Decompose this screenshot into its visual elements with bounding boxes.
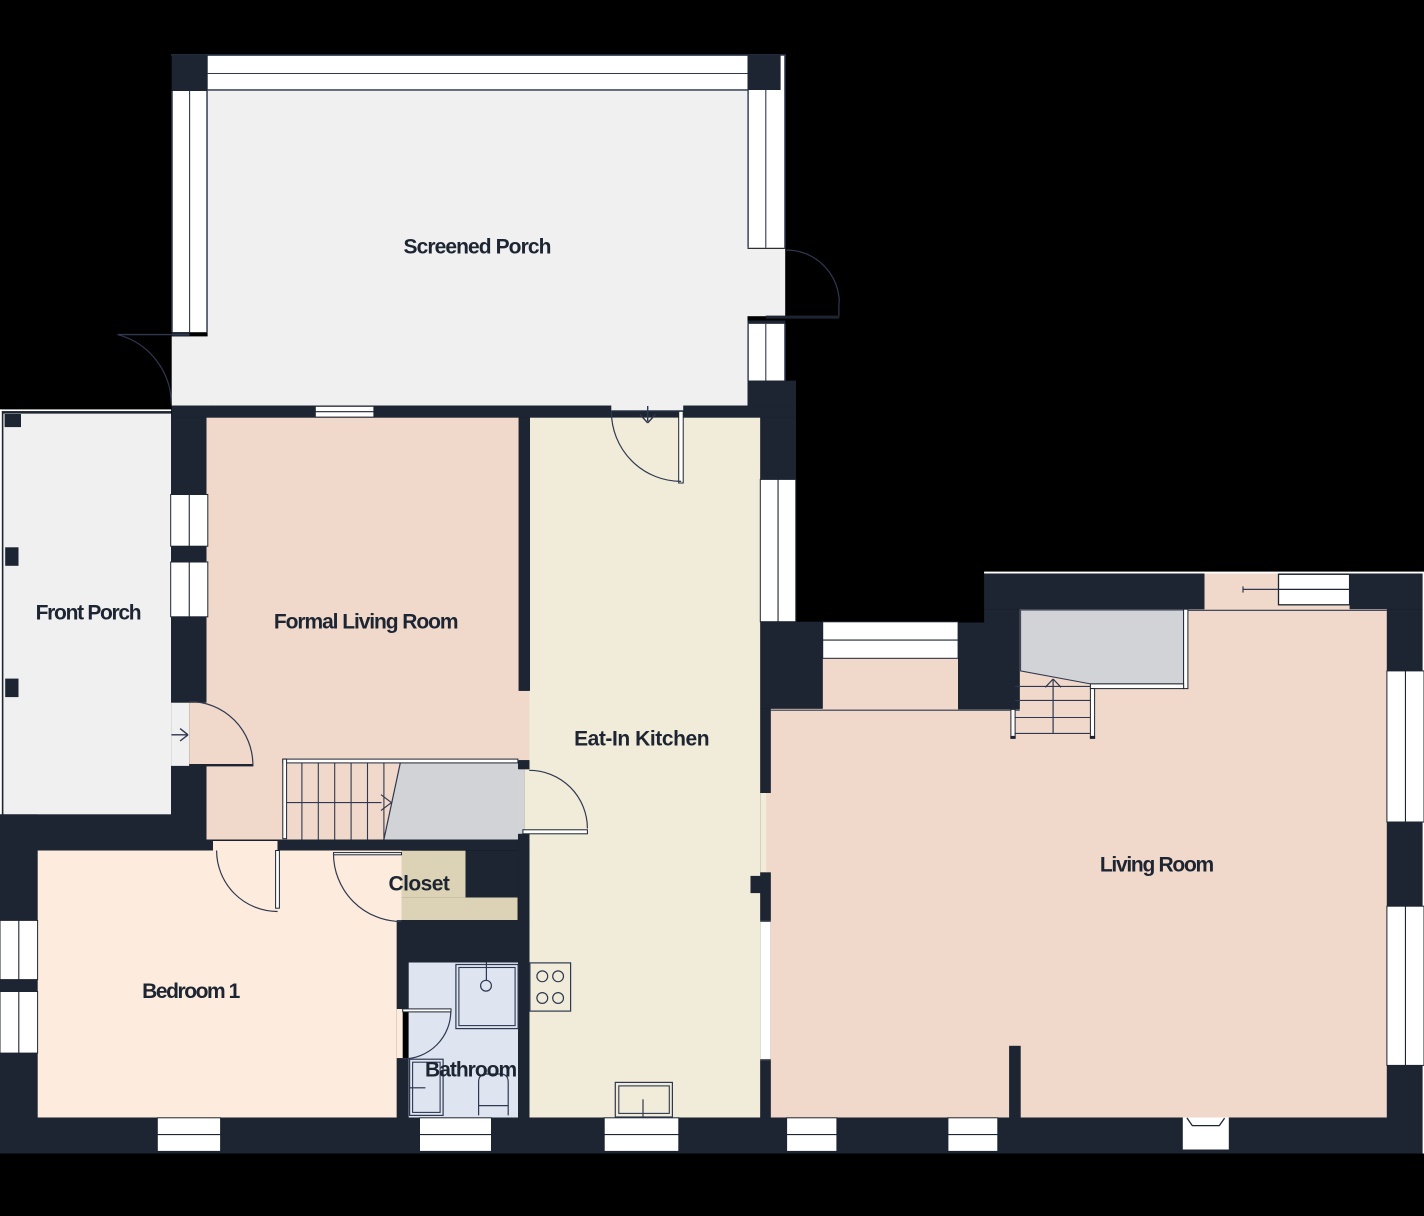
svg-text:Bedroom 1: Bedroom 1 [142, 980, 240, 1003]
svg-text:Eat-In Kitchen: Eat-In Kitchen [574, 727, 709, 750]
svg-text:Screened Porch: Screened Porch [403, 236, 550, 259]
svg-text:Living Room: Living Room [1100, 853, 1214, 876]
svg-text:Bathroom: Bathroom [425, 1058, 516, 1081]
svg-text:Front Porch: Front Porch [36, 602, 141, 625]
svg-text:Formal Living Room: Formal Living Room [274, 611, 458, 634]
svg-text:Closet: Closet [388, 873, 449, 896]
